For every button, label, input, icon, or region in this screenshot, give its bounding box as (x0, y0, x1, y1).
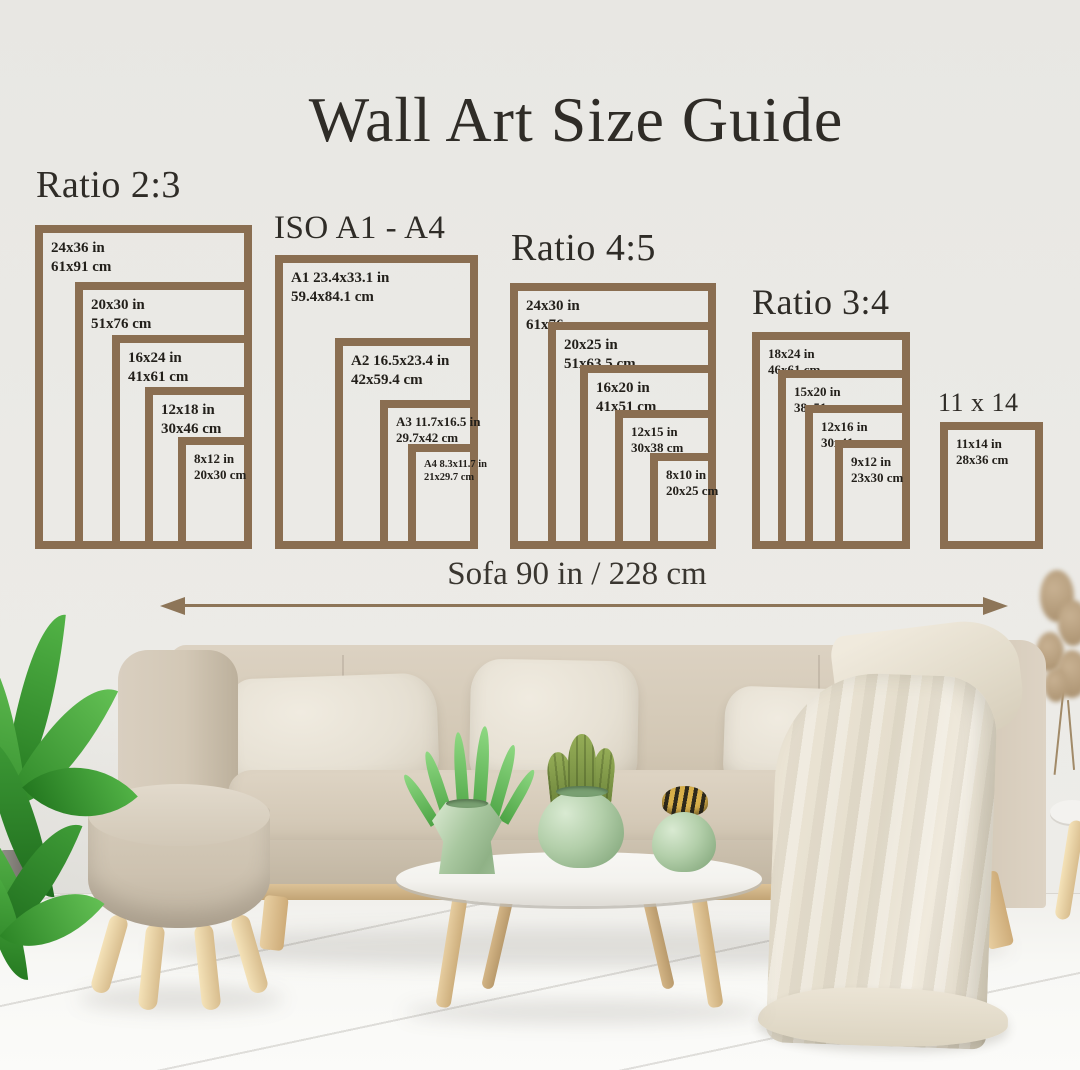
frame-a4: A4 8.3x11.7 in21x29.7 cm (408, 444, 478, 549)
page-title: Wall Art Size Guide (309, 83, 844, 157)
arrow-shaft (176, 604, 992, 607)
vase-round-large (538, 790, 624, 868)
group-heading-ratio-4-5: Ratio 4:5 (511, 226, 656, 270)
frame-11x14: 11x14 in28x36 cm (940, 422, 1043, 549)
frame-size-label: 12x15 in30x38 cm (631, 424, 683, 457)
frame-size-label: A3 11.7x16.5 in29.7x42 cm (396, 414, 481, 447)
frame-size-label: A2 16.5x23.4 in42x59.4 cm (351, 352, 449, 390)
group-heading-ratio-3-4: Ratio 3:4 (752, 281, 890, 323)
group-heading-iso: ISO A1 - A4 (274, 210, 445, 247)
frame-size-label: 12x18 in30x46 cm (161, 401, 221, 439)
houseplant (0, 612, 154, 942)
frame-8x10: 8x10 in20x25 cm (650, 453, 716, 549)
arrow-right-icon (983, 597, 1008, 615)
frame-size-label: 8x12 in20x30 cm (194, 451, 246, 484)
size-group-ratio-3-4: 18x24 in46x61 cm 15x20 in38x51 cm 12x16 … (752, 332, 910, 549)
frame-size-label: 8x10 in20x25 cm (666, 467, 718, 500)
frame-size-label: 11x14 in28x36 cm (956, 436, 1008, 469)
frame-size-label: 24x36 in61x91 cm (51, 239, 111, 277)
size-group-ratio-4-5: 24x30 in61x76 cm 20x25 in51x63.5 cm 16x2… (510, 283, 716, 549)
frame-8x12: 8x12 in20x30 cm (178, 437, 252, 549)
vase-rim (556, 786, 608, 797)
vase-rim (446, 799, 488, 808)
frame-9x12: 9x12 in23x30 cm (835, 440, 910, 549)
vase-round-small (652, 812, 716, 872)
frame-size-label: 16x24 in41x61 cm (128, 349, 188, 387)
sofa-width-label: Sofa 90 in / 228 cm (447, 556, 706, 593)
group-heading-ratio-2-3: Ratio 2:3 (36, 163, 181, 207)
frame-size-label: 20x30 in51x76 cm (91, 296, 151, 334)
frame-size-label: 9x12 in23x30 cm (851, 454, 903, 487)
vase-faceted (432, 802, 502, 874)
frame-size-label: A1 23.4x33.1 in59.4x84.1 cm (291, 269, 389, 307)
size-group-11x14: 11x14 in28x36 cm (940, 422, 1043, 549)
size-group-iso: A1 23.4x33.1 in59.4x84.1 cm A2 16.5x23.4… (275, 255, 478, 549)
sofa-width-arrow (160, 597, 1008, 615)
wall-art-size-guide-poster: { "title": "Wall Art Size Guide", "dimen… (0, 0, 1080, 1069)
group-heading-11x14: 11 x 14 (938, 388, 1019, 418)
size-group-ratio-2-3: 24x36 in61x91 cm 20x30 in51x76 cm 16x24 … (35, 225, 252, 549)
frame-size-label: A4 8.3x11.7 in21x29.7 cm (424, 458, 487, 484)
